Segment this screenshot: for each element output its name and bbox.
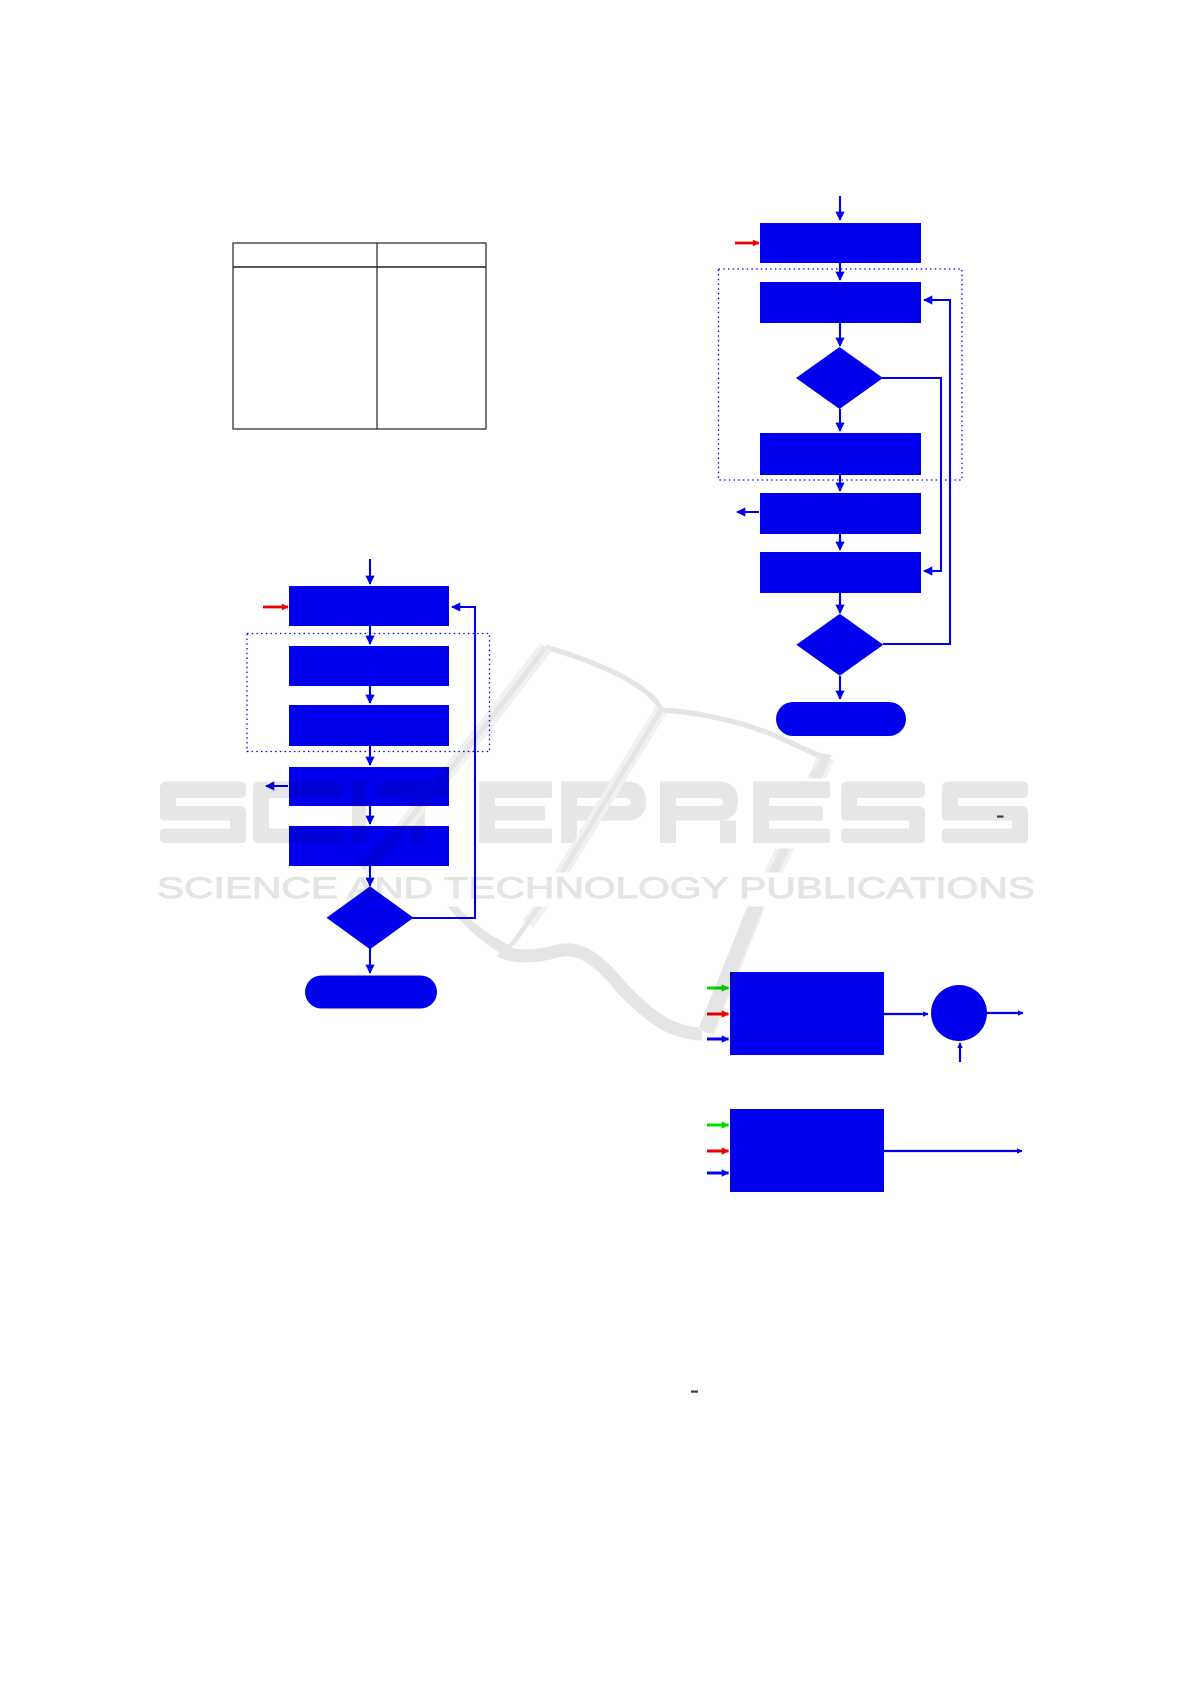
svg-text:SCIENCE AND TECHNOLOGY PUBLICA: SCIENCE AND TECHNOLOGY PUBLICATIONS: [157, 871, 1035, 904]
